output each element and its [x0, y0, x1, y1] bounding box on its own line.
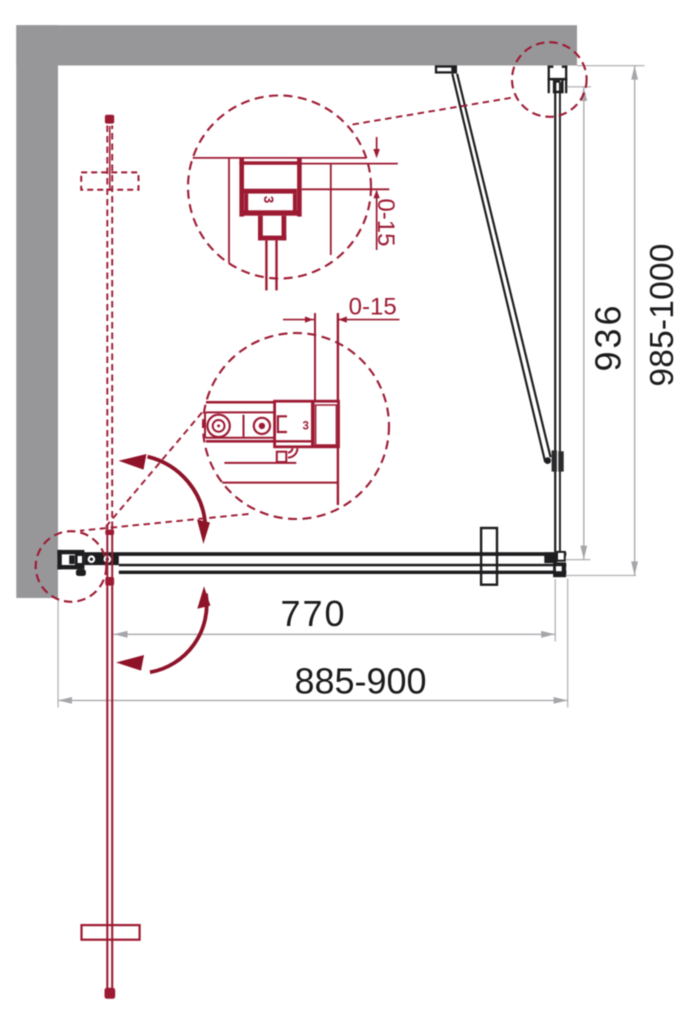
- svg-text:0-15: 0-15: [372, 198, 399, 246]
- svg-text:770: 770: [280, 593, 346, 634]
- svg-text:885-900: 885-900: [294, 661, 426, 702]
- svg-text:3: 3: [302, 421, 308, 433]
- svg-text:0-15: 0-15: [349, 294, 397, 321]
- svg-text:936: 936: [588, 302, 629, 371]
- svg-text:985-1000: 985-1000: [644, 243, 681, 386]
- svg-text:3: 3: [261, 196, 276, 204]
